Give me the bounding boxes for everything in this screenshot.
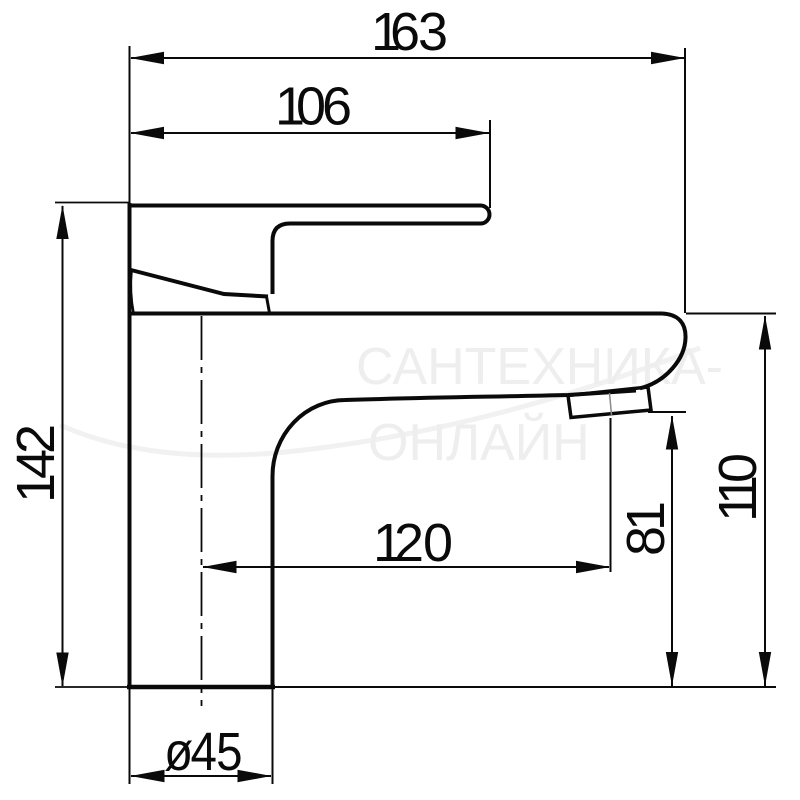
svg-text:6: 6 bbox=[322, 77, 352, 137]
svg-text:1: 1 bbox=[616, 501, 676, 531]
svg-text:3: 3 bbox=[418, 2, 448, 62]
svg-text:ø: ø bbox=[164, 721, 193, 782]
svg-text:0: 0 bbox=[423, 513, 453, 573]
svg-text:САНТЕХНИКА-: САНТЕХНИКА- bbox=[356, 338, 723, 396]
svg-text:2: 2 bbox=[6, 424, 66, 454]
svg-text:5: 5 bbox=[216, 721, 242, 782]
svg-text:0: 0 bbox=[708, 453, 768, 483]
svg-text:6: 6 bbox=[390, 2, 420, 62]
svg-text:4: 4 bbox=[191, 721, 217, 782]
svg-text:2: 2 bbox=[394, 513, 424, 573]
svg-text:ОНЛАЙН: ОНЛАЙН bbox=[368, 413, 590, 472]
